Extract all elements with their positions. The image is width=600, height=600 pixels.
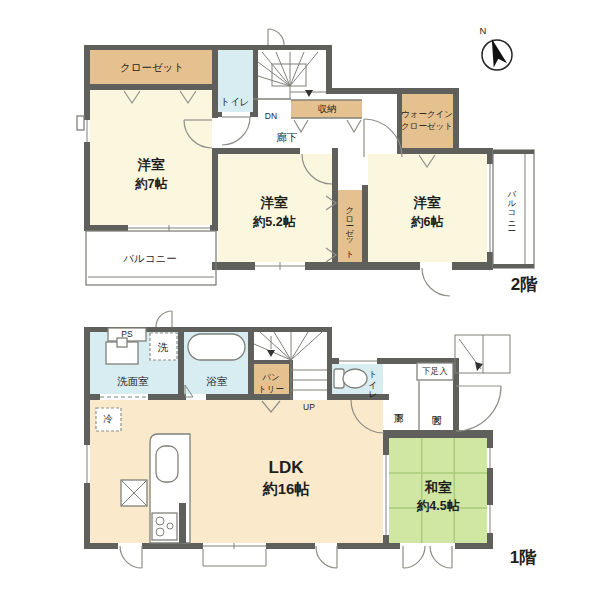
label-wic-line2: クローゼット	[401, 122, 453, 131]
label-genkan: 玄関	[432, 408, 442, 410]
label-yoshitsu52: 洋室	[261, 196, 288, 210]
label-yoshitsu6-size: 約6帖	[411, 216, 443, 229]
label-balcony-left: バルコニー	[123, 253, 176, 264]
label-washitsu-size: 約4.5帖	[417, 500, 459, 513]
entrance-porch	[455, 335, 510, 431]
stairs-2f	[258, 29, 326, 99]
label-hallway-1f: 廊下	[394, 405, 404, 407]
label-wic-line1: ウォークイン	[401, 110, 453, 119]
label-bath: 浴室	[207, 376, 228, 387]
label-balcony-right: バルコニー	[508, 184, 517, 228]
label-ldk-size: 約16帖	[263, 481, 310, 496]
label-floor1: 1階	[510, 549, 536, 566]
floor-plan-drawing	[0, 0, 600, 600]
label-pantry-line1: パン	[262, 373, 279, 382]
label-fridge: 冷	[103, 414, 113, 424]
label-stairs-up: UP	[303, 403, 315, 412]
compass	[482, 37, 512, 70]
floor-plan-page: クローゼット 洋室 約7帖 トイレ DN 収納 廊下 ウォークイン クローゼット…	[0, 0, 600, 600]
label-ldk: LDK	[269, 459, 304, 476]
label-closet-2f: クローゼット	[120, 62, 184, 73]
label-yoshitsu7: 洋室	[138, 158, 165, 172]
room-ldk	[90, 400, 383, 543]
label-yoshitsu52-size: 約5.2帖	[253, 216, 295, 229]
label-shoe-box: 下足入	[422, 367, 448, 376]
label-pantry-line2: トリー	[258, 385, 284, 394]
label-ps: PS	[121, 330, 132, 339]
label-yoshitsu7-size: 約7帖	[135, 178, 167, 191]
label-laundry: 洗	[158, 342, 169, 353]
label-stairs-dn: DN	[265, 112, 277, 121]
label-toilet-2f: トイレ	[220, 97, 249, 107]
label-compass-n: N	[480, 26, 487, 36]
label-hallway-2f: 廊下	[277, 132, 298, 143]
label-closet-mid: クローゼット	[346, 200, 355, 255]
label-yoshitsu6: 洋室	[414, 196, 441, 210]
label-senmen: 洗面室	[117, 376, 149, 387]
label-storage-2f: 収納	[318, 104, 337, 114]
room-yoshitsu7	[90, 84, 212, 225]
label-floor2: 2階	[511, 276, 537, 293]
label-washitsu: 和室	[425, 481, 452, 495]
label-toilet-1f: トイレ	[369, 364, 378, 396]
